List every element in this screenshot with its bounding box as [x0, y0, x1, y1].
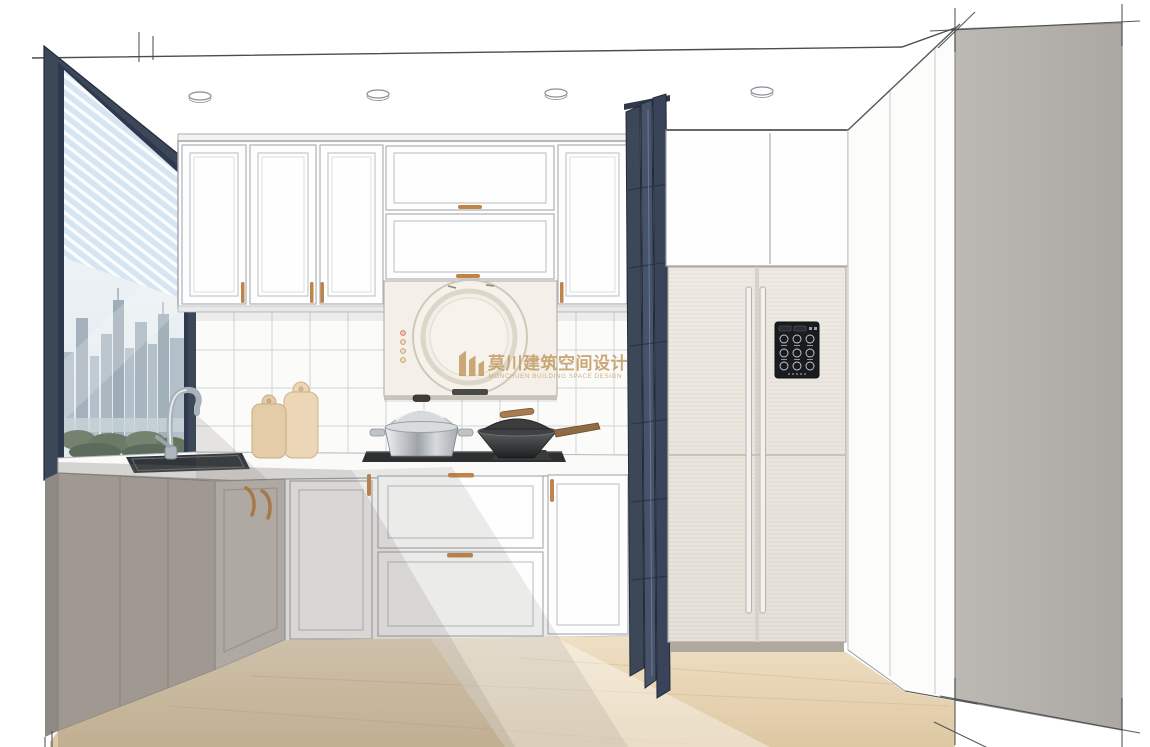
- signal-icon: [814, 327, 817, 330]
- scene-canvas: 莫川建筑空间设计 MONCHUEN BUILDING SPACE DESIGN: [0, 0, 1150, 747]
- watermark-text-en: MONCHUEN BUILDING SPACE DESIGN: [489, 373, 623, 380]
- right-side-panels: [848, 24, 960, 700]
- city-water: [64, 418, 184, 432]
- fridge-plinth: [670, 642, 844, 652]
- hood-vent: [452, 389, 488, 395]
- ceiling-light-icon: [367, 90, 389, 101]
- ceiling-light-icon: [751, 87, 773, 98]
- cabinet-door: [320, 145, 383, 304]
- cabinet-flipup-door: [386, 214, 554, 279]
- fridge: [668, 267, 846, 652]
- cabinet-handle: [321, 282, 325, 303]
- cabinet-door: [548, 475, 628, 634]
- gray-wall-panel: [955, 23, 1122, 730]
- fridge-cabinet: [666, 130, 848, 652]
- cabinet-handle: [241, 282, 245, 303]
- cabinet-door: [250, 145, 316, 304]
- cabinet-handle: [456, 274, 480, 278]
- cutting-board-small: [252, 395, 286, 458]
- cabinet-door: [182, 145, 246, 304]
- cabinet-flipup-door: [386, 146, 554, 210]
- ceiling: [32, 28, 955, 103]
- range-hood: [384, 280, 557, 400]
- cutting-board-large: [284, 382, 318, 458]
- cabinet-handle: [310, 282, 314, 303]
- ceiling-light-icon: [545, 89, 567, 100]
- ceiling-light-icon: [189, 92, 211, 103]
- cabinet-door: [558, 145, 627, 304]
- cabinet-handle: [550, 479, 554, 502]
- wifi-icon: [809, 327, 812, 330]
- fridge-screen: [775, 322, 819, 378]
- folding-door: [624, 94, 670, 698]
- kitchen-rendering: 莫川建筑空间设计 MONCHUEN BUILDING SPACE DESIGN: [0, 0, 1150, 747]
- cabinet-handle: [458, 205, 482, 209]
- watermark-text-cn: 莫川建筑空间设计: [487, 353, 628, 373]
- cabinet-handle: [560, 282, 564, 303]
